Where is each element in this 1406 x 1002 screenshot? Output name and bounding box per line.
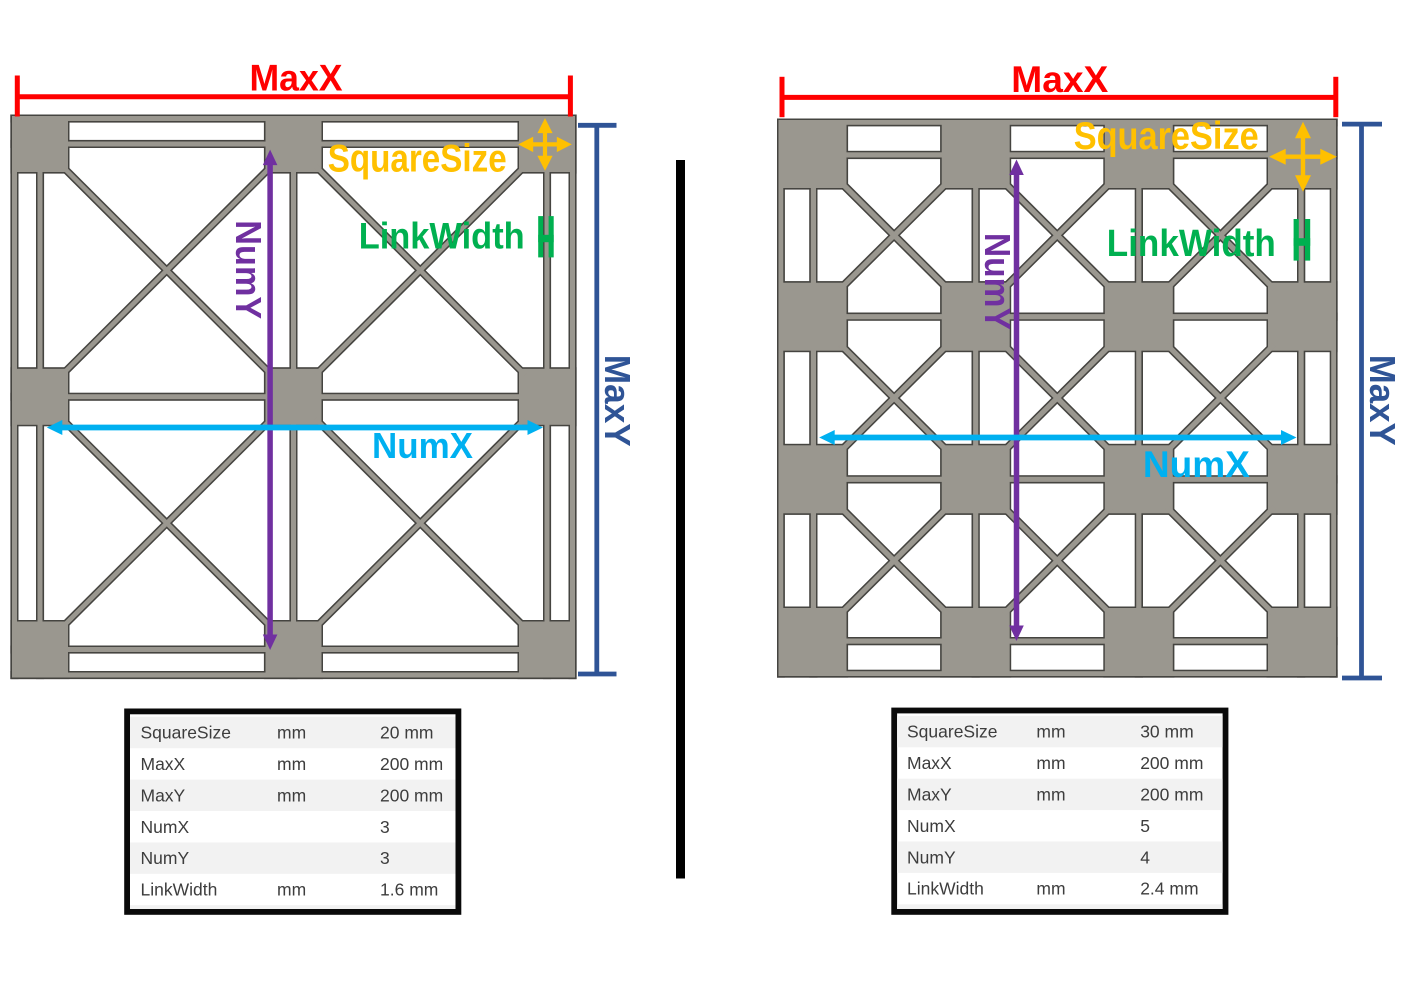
- svg-text:MaxY: MaxY: [141, 785, 186, 805]
- svg-text:NumX: NumX: [141, 817, 190, 837]
- svg-text:mm: mm: [277, 880, 306, 900]
- svg-text:200 mm: 200 mm: [380, 754, 443, 774]
- svg-text:LinkWidth: LinkWidth: [359, 215, 525, 256]
- svg-text:NumY: NumY: [977, 233, 1018, 330]
- svg-text:30 mm: 30 mm: [1140, 722, 1193, 742]
- svg-text:3: 3: [380, 848, 390, 868]
- svg-text:3: 3: [380, 817, 390, 837]
- svg-text:NumY: NumY: [228, 220, 269, 319]
- svg-text:200 mm: 200 mm: [1140, 785, 1203, 805]
- svg-text:SquareSize: SquareSize: [1074, 115, 1259, 158]
- svg-text:MaxX: MaxX: [141, 754, 186, 774]
- svg-text:4: 4: [1140, 847, 1150, 867]
- svg-text:1.6 mm: 1.6 mm: [380, 880, 438, 900]
- svg-text:MaxY: MaxY: [907, 785, 952, 805]
- svg-text:NumX: NumX: [907, 816, 956, 836]
- svg-text:SquareSize: SquareSize: [907, 722, 997, 742]
- svg-text:5: 5: [1140, 816, 1150, 836]
- svg-text:NumY: NumY: [141, 848, 190, 868]
- svg-text:200 mm: 200 mm: [380, 785, 443, 805]
- svg-text:MaxX: MaxX: [1011, 59, 1108, 100]
- svg-text:MaxX: MaxX: [907, 753, 952, 773]
- svg-text:mm: mm: [277, 785, 306, 805]
- svg-text:SquareSize: SquareSize: [328, 138, 507, 181]
- svg-text:LinkWidth: LinkWidth: [1107, 223, 1276, 265]
- svg-text:200 mm: 200 mm: [1140, 753, 1203, 773]
- svg-text:MaxY: MaxY: [597, 355, 638, 447]
- svg-text:mm: mm: [277, 754, 306, 774]
- svg-text:NumY: NumY: [907, 847, 956, 867]
- svg-text:SquareSize: SquareSize: [141, 723, 231, 743]
- svg-text:NumX: NumX: [1143, 444, 1250, 485]
- svg-text:MaxX: MaxX: [250, 58, 343, 99]
- svg-text:MaxY: MaxY: [1362, 355, 1403, 446]
- svg-text:mm: mm: [1036, 879, 1065, 899]
- svg-text:NumX: NumX: [372, 425, 473, 466]
- svg-text:mm: mm: [1036, 753, 1065, 773]
- svg-text:mm: mm: [1036, 722, 1065, 742]
- svg-text:20 mm: 20 mm: [380, 723, 433, 743]
- svg-text:mm: mm: [1036, 785, 1065, 805]
- svg-text:2.4 mm: 2.4 mm: [1140, 879, 1198, 899]
- svg-text:LinkWidth: LinkWidth: [907, 879, 984, 899]
- svg-text:LinkWidth: LinkWidth: [141, 880, 218, 900]
- svg-text:mm: mm: [277, 723, 306, 743]
